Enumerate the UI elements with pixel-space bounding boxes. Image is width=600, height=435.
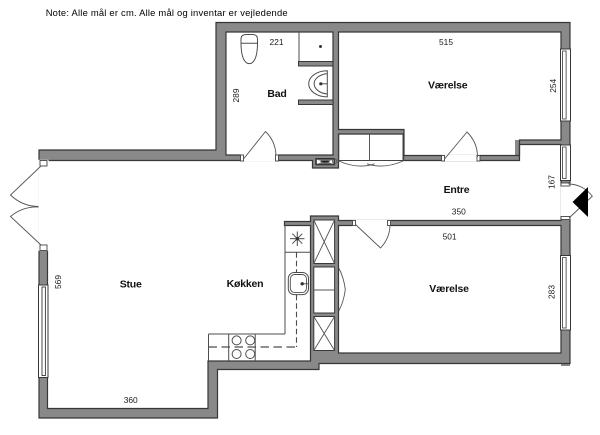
svg-text:254: 254 bbox=[548, 78, 558, 92]
svg-text:289: 289 bbox=[231, 88, 241, 102]
svg-text:Værelse: Værelse bbox=[428, 79, 468, 91]
svg-text:Bad: Bad bbox=[267, 88, 286, 100]
svg-text:569: 569 bbox=[53, 275, 63, 289]
svg-text:360: 360 bbox=[124, 395, 138, 405]
svg-text:501: 501 bbox=[443, 231, 457, 241]
svg-text:Stue: Stue bbox=[120, 279, 142, 291]
svg-text:167: 167 bbox=[547, 175, 557, 189]
svg-text:221: 221 bbox=[270, 37, 284, 47]
svg-text:350: 350 bbox=[452, 207, 466, 217]
svg-text:Værelse: Værelse bbox=[429, 283, 469, 295]
svg-text:Note: Alle mål er cm. Alle mål: Note: Alle mål er cm. Alle mål og invent… bbox=[46, 7, 288, 18]
svg-text:283: 283 bbox=[546, 285, 556, 299]
svg-text:Køkken: Køkken bbox=[227, 278, 264, 290]
svg-text:515: 515 bbox=[439, 37, 453, 47]
svg-text:Entre: Entre bbox=[444, 184, 470, 196]
